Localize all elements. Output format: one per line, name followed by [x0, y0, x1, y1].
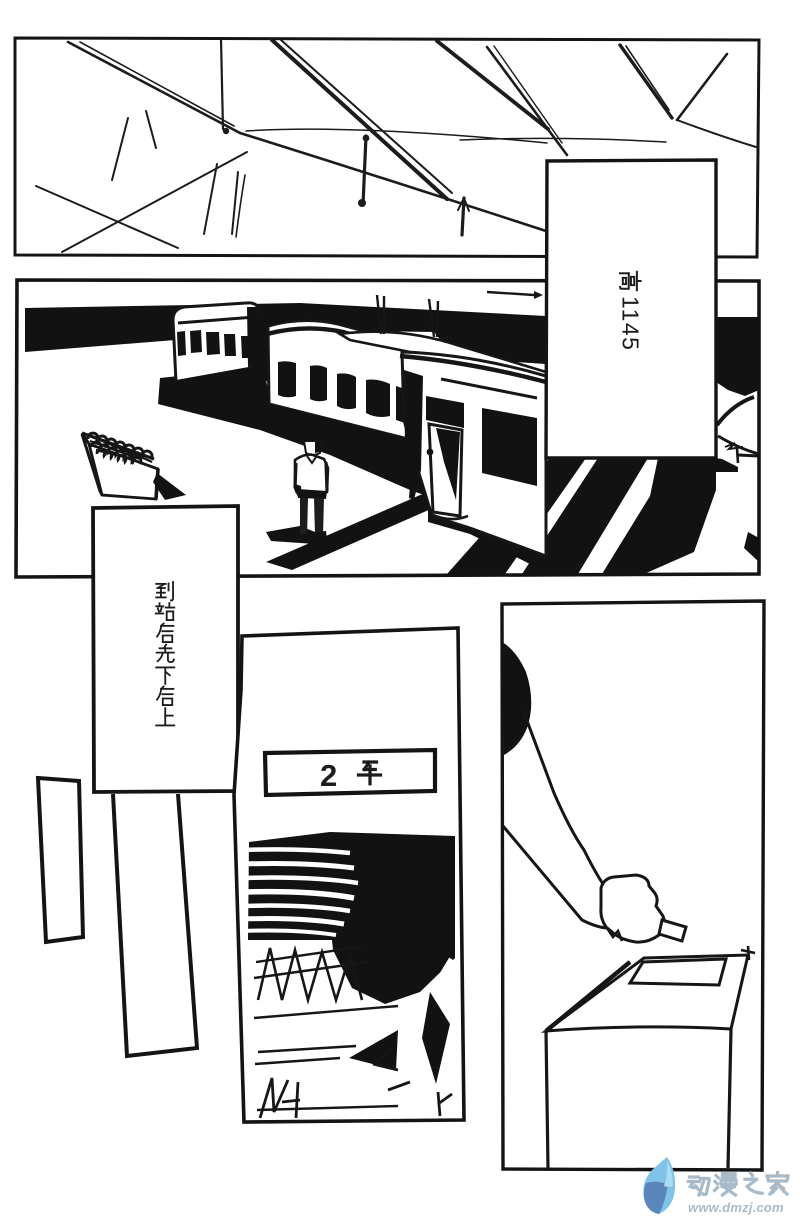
- svg-text:1145: 1145: [618, 296, 644, 351]
- svg-text:2: 2: [320, 758, 337, 793]
- svg-text:www.dmzj.com: www.dmzj.com: [688, 1200, 784, 1215]
